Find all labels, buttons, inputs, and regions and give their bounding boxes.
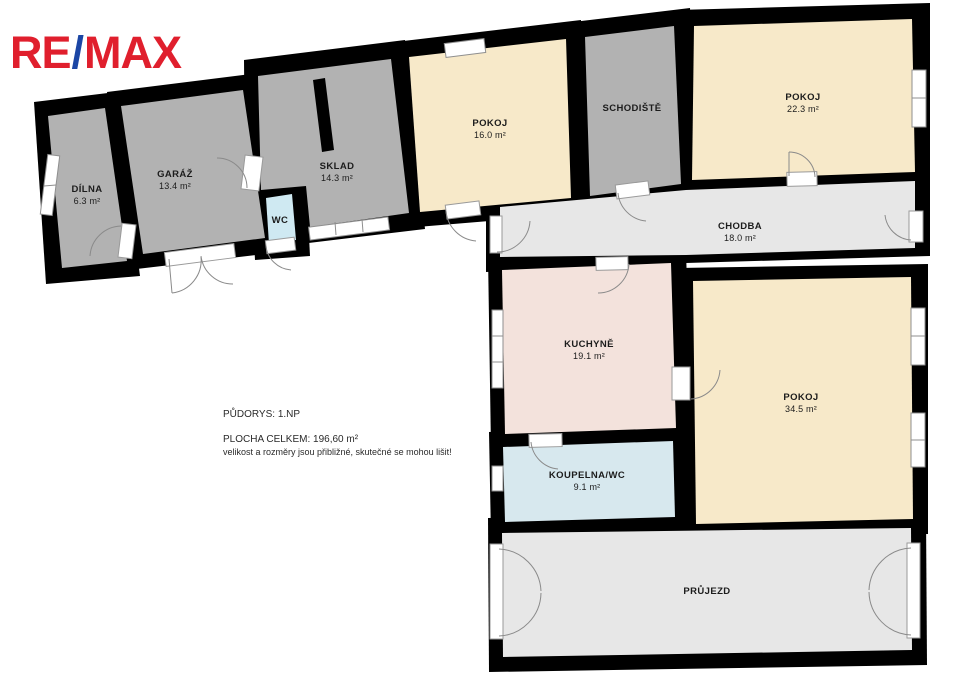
koupelna-door [529,434,562,448]
label-schodiste: SCHODIŠTĚ [602,102,661,114]
label-prujezd: PRŮJEZD [683,585,730,597]
floorplan-page: RE/MAX [0,0,960,679]
garaz-side-door [241,155,263,191]
area-chodba: 18.0 m² [724,233,756,243]
plan-annotation: PŮDORYS: 1.NP PLOCHA CELKEM: 196,60 m² v… [223,409,452,457]
label-wc: WC [272,215,289,226]
area-garaz: 13.4 m² [159,181,191,191]
plan-title: PŮDORYS: 1.NP [223,409,452,420]
label-koupelna: KOUPELNA/WC [549,470,625,481]
area-pokoj16: 16.0 m² [474,130,506,140]
prujezd-left-gate [490,544,503,639]
kuchyne-left-window [492,310,503,388]
pokoj34-door [672,367,690,400]
floorplan-drawing: DÍLNA 6.3 m² GARÁŽ 13.4 m² SKLAD 14.3 m²… [0,0,960,679]
label-chodba: CHODBA [718,221,762,232]
label-kuchyne: KUCHYNĚ [564,338,614,350]
plan-total-area: PLOCHA CELKEM: 196,60 m² [223,434,452,445]
plan-disclaimer: velikost a rozměry jsou přibližné, skute… [223,447,452,457]
koupelna-left-window [492,466,503,491]
area-kuchyne: 19.1 m² [573,351,605,361]
pokoj22-door [787,172,817,187]
area-koupelna: 9.1 m² [574,482,601,492]
area-pokoj22: 22.3 m² [787,104,819,114]
chodba-right-door [909,211,923,242]
area-sklad: 14.3 m² [321,173,353,183]
area-pokoj34: 34.5 m² [785,404,817,414]
kuchyne-door [596,257,628,271]
label-pokoj34: POKOJ [783,392,818,403]
prujezd-right-gate [907,543,920,638]
room-floors [48,19,915,657]
label-garaz: GARÁŽ [157,168,193,180]
area-dilna: 6.3 m² [74,196,101,206]
label-pokoj22: POKOJ [785,92,820,103]
label-pokoj16: POKOJ [472,118,507,129]
label-dilna: DÍLNA [71,184,102,195]
chodba-left-door [490,216,502,253]
label-sklad: SKLAD [320,161,355,172]
